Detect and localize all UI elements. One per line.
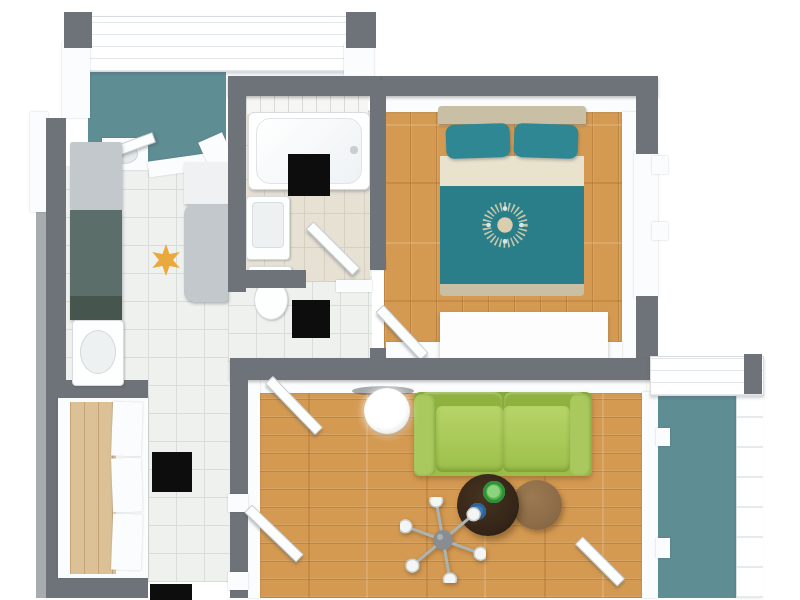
bathroom-top-wall	[228, 76, 382, 96]
living-east-window-wall	[642, 392, 658, 598]
bathroom-door-jamb	[336, 280, 372, 292]
bed-sheet-fold	[440, 156, 584, 188]
balcony-right-railing	[736, 392, 763, 598]
closet-floor	[70, 402, 116, 574]
black-square-marker-hall-middle	[152, 452, 192, 492]
wall-post-balcony-right	[744, 354, 762, 394]
bedroom-window-sill	[652, 222, 668, 240]
kitchen-white-cabinet	[184, 162, 230, 204]
kitchen-counter	[70, 210, 122, 320]
sofa-armrest-right	[570, 394, 592, 476]
sofa-seat-cushion	[436, 406, 503, 472]
balcony-left-railing-end	[62, 42, 90, 118]
hallway-door-frame	[228, 494, 248, 512]
sofa-armrest-left	[414, 394, 436, 476]
bedroom-west-wall-upper	[370, 80, 386, 270]
bedroom-east-wall-upper	[636, 96, 658, 154]
kitchen-appliance-cabinet	[184, 204, 228, 302]
floor-plan: 3D top-down floor plan of a one-bedroom …	[0, 0, 800, 600]
wall-post-top-right	[346, 12, 376, 48]
closet-door-panel	[111, 513, 143, 570]
closet-door-panel	[111, 457, 143, 512]
bed-footboard	[440, 284, 584, 296]
balcony-window-sill	[656, 428, 670, 446]
bed-headboard	[438, 106, 586, 124]
bed-pillow-left	[445, 123, 510, 159]
kitchen-sink-basin	[80, 330, 116, 374]
bedroom-east-wall-lower	[636, 296, 658, 362]
bathtub-faucet	[350, 146, 358, 154]
main-horizontal-wall	[230, 358, 722, 380]
black-square-marker-bathroom	[288, 154, 330, 196]
balcony-top-railing	[88, 16, 348, 72]
bathroom-west-wall	[228, 96, 246, 292]
wall-post-top-left	[64, 12, 92, 48]
black-square-marker-hall-bottom	[150, 584, 192, 600]
bed-pillow-right	[513, 123, 578, 159]
green-bowl-inner	[487, 485, 500, 498]
bathroom-sink-basin	[252, 202, 284, 248]
balcony-window-sill	[656, 538, 670, 558]
sofa-seat-cushion	[503, 406, 570, 472]
hallway-door-frame	[228, 572, 248, 590]
bed-mandala-throw	[476, 196, 534, 254]
six-arm-floor-lamp	[400, 497, 486, 583]
bedroom-north-wall	[382, 76, 658, 96]
refrigerator	[70, 142, 122, 210]
closet-door-panel	[111, 401, 143, 456]
hallway-living-wall	[230, 380, 248, 598]
bedroom-window-sill	[652, 156, 668, 174]
black-square-marker-hall-upper	[292, 300, 330, 338]
side-table	[512, 480, 562, 530]
balcony-right-floor	[658, 392, 738, 598]
bathroom-south-wall	[228, 270, 306, 288]
bedroom-rug	[440, 312, 608, 358]
living-west-wall-face	[248, 380, 260, 598]
round-white-table	[364, 388, 410, 434]
